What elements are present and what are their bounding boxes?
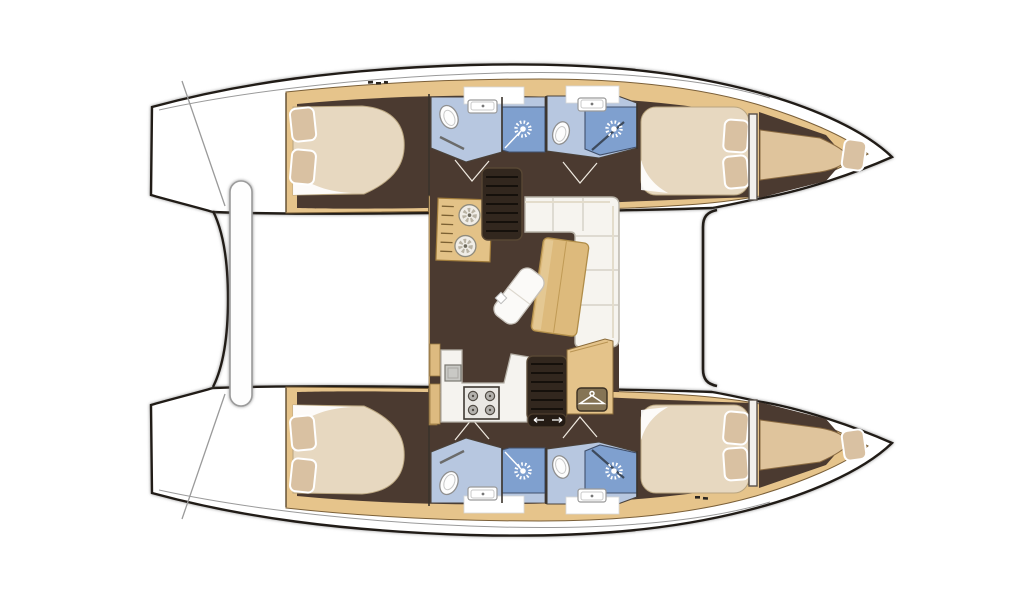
galley-sink-icon <box>445 365 461 381</box>
wardrobe <box>567 339 613 414</box>
catamaran-floor-plan <box>0 0 1024 600</box>
dinghy-crossbar <box>230 181 252 406</box>
galley-cabinet <box>430 344 440 376</box>
saloon <box>429 168 619 427</box>
stern-bridgedeck-edge <box>213 211 228 387</box>
dial-icon <box>459 204 481 226</box>
stove-icon <box>464 387 499 419</box>
stairs-port-icon <box>482 168 522 240</box>
stairs-starboard-icon <box>527 356 567 427</box>
floor-plan-stage <box>0 0 1024 600</box>
dial-icon <box>455 235 477 257</box>
forward-crossbeam-line <box>703 210 717 386</box>
galley-cabinet <box>430 384 440 424</box>
